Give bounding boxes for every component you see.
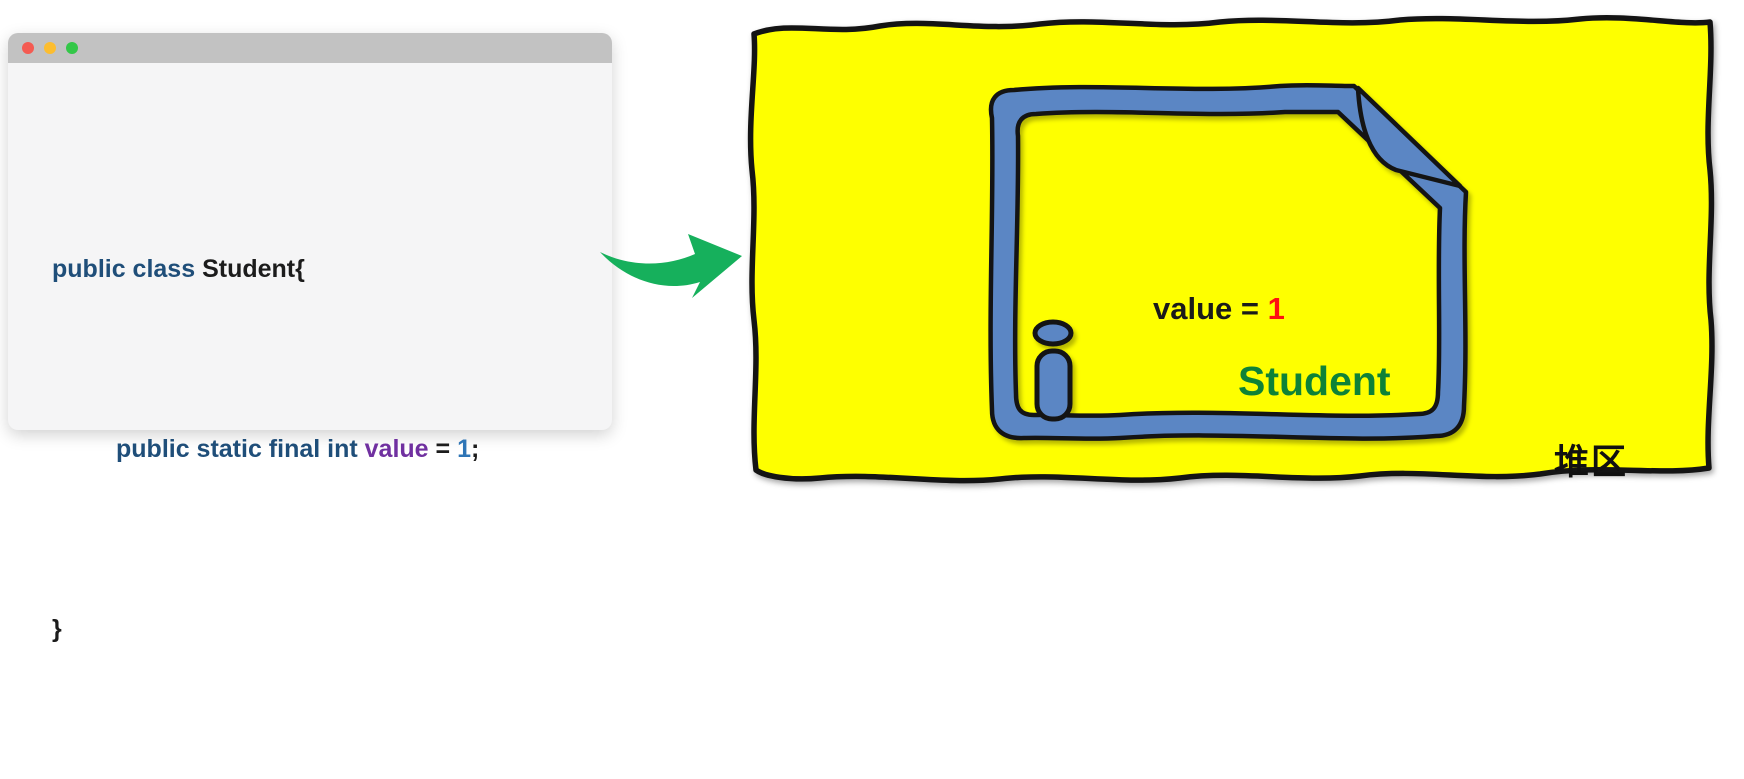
code-punctuation: ;	[471, 435, 479, 463]
close-button-icon[interactable]	[22, 42, 34, 54]
code-line-1: public class Student{	[52, 239, 612, 299]
code-line-3: }	[52, 599, 612, 659]
code-editor-window: public class Student{ public static fina…	[8, 33, 612, 430]
code-field-name: value	[365, 435, 429, 463]
code-line-2: public static final int value = 1;	[52, 419, 612, 479]
minimize-button-icon[interactable]	[44, 42, 56, 54]
zoom-button-icon[interactable]	[66, 42, 78, 54]
code-editor-content: public class Student{ public static fina…	[8, 63, 612, 430]
window-titlebar	[8, 33, 612, 63]
info-i-icon	[1035, 322, 1071, 419]
code-operator: =	[429, 435, 458, 463]
code-number-literal: 1	[457, 435, 471, 463]
heap-region: value = 1 Student 堆区	[740, 10, 1720, 490]
field-label: value =	[1153, 291, 1268, 326]
code-closing-brace: }	[52, 615, 62, 643]
folded-corner	[1358, 88, 1460, 186]
code-keyword: public class	[52, 255, 202, 283]
class-name-label: Student	[1238, 358, 1391, 405]
curved-arrow-icon	[596, 222, 746, 307]
heap-region-label: 堆区	[1554, 434, 1628, 485]
code-class-name: Student{	[202, 255, 305, 283]
static-field-assignment: value = 1	[1153, 291, 1285, 327]
code-keyword: public static final int	[116, 435, 365, 463]
class-document-icon	[740, 10, 1720, 490]
field-value: 1	[1268, 291, 1285, 326]
